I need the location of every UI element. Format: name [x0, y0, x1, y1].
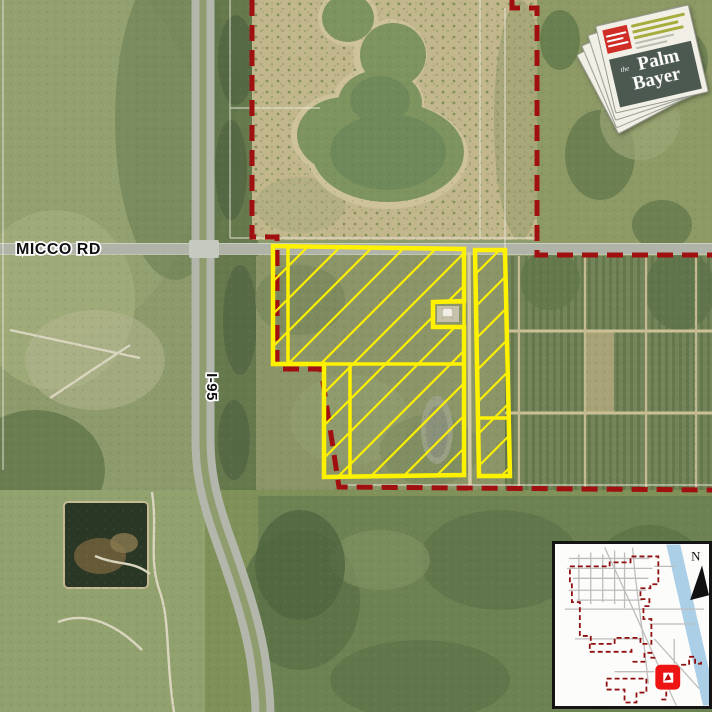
north-label: N: [691, 548, 701, 563]
parcel-strip-hatched: [475, 250, 510, 476]
farm-road: [469, 252, 470, 491]
micco-rd-label: MICCO RD: [16, 241, 101, 258]
overpass: [189, 240, 219, 258]
inset-svg: N: [555, 544, 709, 706]
aerial-parcel-map: MICCO RD I-95 the Palm Bayer: [0, 0, 712, 712]
newspaper-red-box: [602, 25, 632, 54]
north-arrow-icon: [690, 565, 709, 600]
inset-locator-map: N: [552, 541, 712, 709]
i95-label: I-95: [203, 373, 220, 401]
inset-site-marker: [655, 665, 680, 690]
